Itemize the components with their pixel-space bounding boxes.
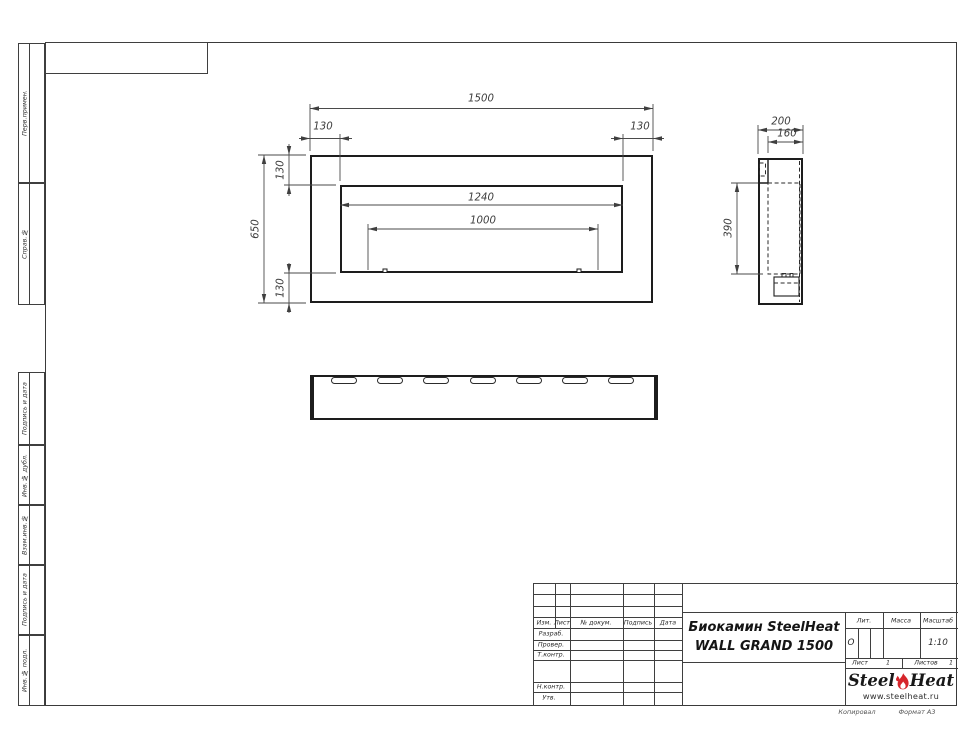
list-label: Лист [852,660,868,667]
margin-stamp-label: Инв.№ дубл. [19,446,30,504]
dim-front-opening-width: 1240 [468,193,494,204]
top-left-stamp-box [45,42,208,74]
dim-front-height: 650 [251,219,262,238]
row-utv: Утв. [542,695,555,702]
margin-stamp-sprav-no: Справ.№ [18,183,45,305]
steelheat-logo: Steel Heat www.steelheat.ru [845,668,957,706]
row-nkontr: Н.контр. [537,684,565,691]
row-prover: Провер. [538,642,564,649]
row-tkontr: Т.контр. [537,652,564,659]
listov-value: 1 [949,660,953,667]
dim-front-top-inset: 130 [276,160,287,179]
logo-word-steel: Steel [848,673,895,690]
document-title: Биокамин SteelHeat WALL GRAND 1500 [683,612,845,662]
margin-stamp-label: Инв.№ подл. [19,636,30,705]
dim-side-depth: 200 [771,117,790,128]
dim-front-left-inset: 130 [313,122,332,133]
document-title-line2: WALL GRAND 1500 [695,637,833,657]
margin-stamp-inv-podl: Инв.№ подл. [18,635,45,706]
margin-stamp-label: Подпись и дата [19,566,30,634]
dim-front-right-inset: 130 [630,122,649,133]
logo-word-heat: Heat [910,673,954,690]
margin-stamp-label: Перв.примен. [19,44,30,182]
vent-slot [470,377,496,384]
margin-stamp-vzam-inv: Взам.инв.№ [18,505,45,565]
massa-label: Масса [891,618,911,625]
margin-stamp-podpis-data-2: Подпись и дата [18,565,45,635]
margin-stamp-podpis-data-1: Подпись и дата [18,372,45,445]
dim-front-burner-width: 1000 [470,216,496,227]
logo-website: www.steelheat.ru [863,691,939,701]
col-podpis: Подпись [624,620,652,627]
col-list: Лист [554,620,570,627]
margin-stamp-label: Справ.№ [19,184,30,304]
drawing-frame [45,42,957,706]
masshtab-value: 1:10 [928,638,948,648]
margin-stamp-perv-primen: Перв.примен. [18,43,45,183]
drawing-sheet: Перв.примен. Справ.№ Подпись и дата Инв.… [0,0,970,749]
col-dokum: № докум. [580,620,611,627]
vent-slot [516,377,542,384]
margin-stamp-label: Взам.инв.№ [19,506,30,564]
row-razrab: Разраб. [539,631,564,638]
dim-side-inner-depth: 160 [777,129,796,140]
lit-value: О [848,638,855,648]
lit-label: Лит. [857,618,872,625]
margin-stamp-inv-dubl: Инв.№ дубл. [18,445,45,505]
copied-label: Копировал [838,708,875,716]
flame-icon [896,673,909,690]
vent-slot [562,377,588,384]
dim-front-bottom-inset: 130 [276,278,287,297]
col-data: Дата [660,620,676,627]
vent-slot [423,377,449,384]
dim-front-total-width: 1500 [468,94,494,105]
list-value: 1 [886,660,890,667]
format-label: Формат А3 [898,708,935,716]
dim-side-opening-height: 390 [724,218,735,237]
col-izm: Изм. [537,620,552,627]
vent-slot [608,377,634,384]
side-view-outline [758,158,803,305]
vent-slot [331,377,357,384]
document-title-line1: Биокамин SteelHeat [688,618,839,638]
margin-stamp-label: Подпись и дата [19,373,30,444]
listov-label: Листов [914,660,938,667]
vent-slot [377,377,403,384]
masshtab-label: Масштаб [923,618,953,625]
